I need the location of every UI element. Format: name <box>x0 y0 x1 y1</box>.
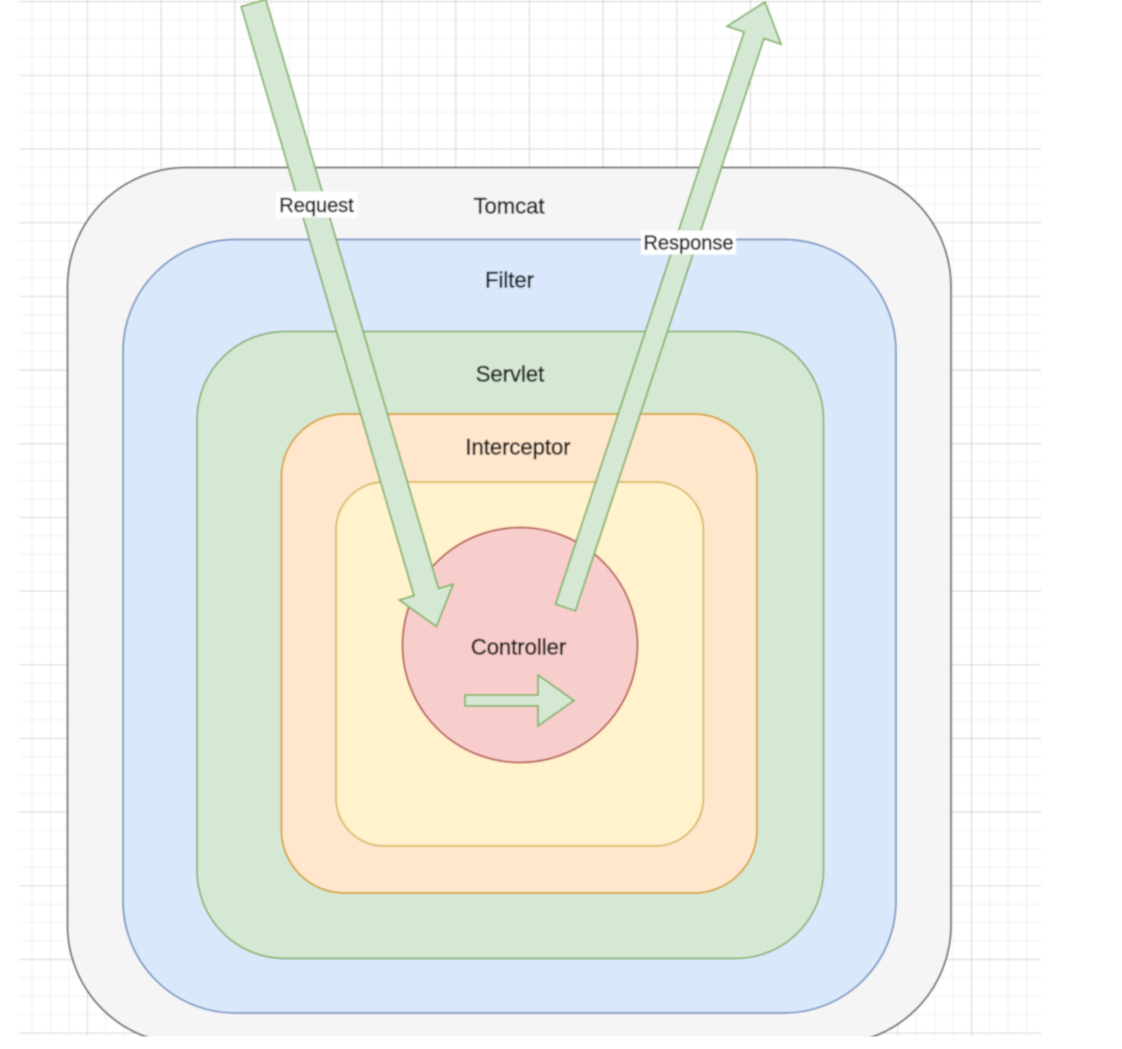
svg-text:Controller: Controller <box>471 635 566 660</box>
svg-text:Response: Response <box>643 233 733 255</box>
svg-text:Filter: Filter <box>485 268 534 293</box>
svg-text:Request: Request <box>279 195 354 217</box>
svg-text:Interceptor: Interceptor <box>465 435 570 460</box>
svg-text:Servlet: Servlet <box>476 362 544 387</box>
svg-text:Tomcat: Tomcat <box>474 194 545 219</box>
